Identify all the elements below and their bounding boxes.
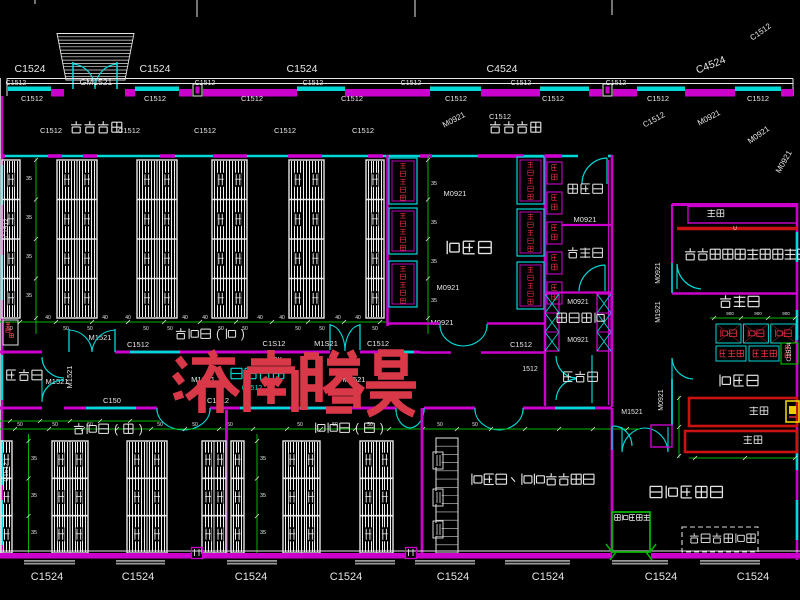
svg-text:50: 50 — [17, 422, 23, 428]
svg-text:C1524: C1524 — [532, 571, 564, 583]
svg-text:C1512: C1512 — [445, 94, 467, 103]
svg-text:50: 50 — [472, 422, 478, 428]
svg-text:C1512: C1512 — [3, 218, 10, 238]
svg-text:50: 50 — [87, 326, 93, 332]
svg-text:C1524: C1524 — [737, 571, 769, 583]
svg-text:35: 35 — [31, 456, 37, 462]
svg-text:35: 35 — [260, 456, 266, 462]
svg-text:M0921: M0921 — [437, 283, 460, 292]
svg-text:35: 35 — [26, 254, 32, 260]
svg-text:50: 50 — [157, 422, 163, 428]
svg-text:C1512: C1512 — [195, 80, 216, 87]
svg-text:C1512: C1512 — [511, 80, 532, 87]
svg-text:C1524: C1524 — [437, 571, 469, 583]
svg-text:50: 50 — [319, 326, 325, 332]
svg-text:900: 900 — [726, 311, 734, 316]
svg-text:35: 35 — [26, 293, 32, 299]
svg-text:C1524: C1524 — [786, 342, 793, 362]
svg-text:1512: 1512 — [522, 366, 538, 373]
svg-text:C1524: C1524 — [287, 63, 318, 75]
svg-text:C1524: C1524 — [140, 63, 171, 75]
svg-text:40: 40 — [125, 315, 131, 321]
svg-text:C1512: C1512 — [542, 94, 564, 103]
svg-text:35: 35 — [26, 176, 32, 182]
svg-text:C1512: C1512 — [352, 126, 374, 135]
svg-text:C1512: C1512 — [40, 126, 62, 135]
svg-text:C1512: C1512 — [3, 462, 10, 482]
svg-text:35: 35 — [31, 530, 37, 536]
svg-text:M1521: M1521 — [89, 333, 112, 342]
svg-text:50: 50 — [295, 326, 301, 332]
svg-text:(: ( — [355, 423, 359, 435]
svg-text:M0921: M0921 — [655, 262, 662, 284]
svg-text:M1521: M1521 — [621, 409, 643, 416]
svg-text:40: 40 — [279, 315, 285, 321]
svg-text:C1512: C1512 — [606, 80, 627, 87]
svg-text:): ) — [241, 329, 245, 341]
svg-text:900: 900 — [754, 311, 762, 316]
svg-text:C1512: C1512 — [341, 94, 363, 103]
svg-text:50: 50 — [63, 326, 69, 332]
svg-text:C1512: C1512 — [647, 94, 669, 103]
svg-text:50: 50 — [52, 422, 58, 428]
svg-text:C1524: C1524 — [330, 571, 362, 583]
svg-text:40: 40 — [45, 315, 51, 321]
svg-text:40: 40 — [102, 315, 108, 321]
svg-text:C1512: C1512 — [21, 94, 43, 103]
svg-text:35: 35 — [260, 493, 266, 499]
svg-text:C1512: C1512 — [127, 340, 149, 349]
svg-text:M0921: M0921 — [574, 215, 597, 224]
svg-text:50: 50 — [143, 326, 149, 332]
svg-text:M1921: M1921 — [655, 301, 662, 323]
svg-text:C1512: C1512 — [194, 126, 216, 135]
svg-text:C1524: C1524 — [15, 63, 46, 75]
svg-text:C1524: C1524 — [31, 571, 63, 583]
svg-text:C1512: C1512 — [274, 126, 296, 135]
svg-text:C1S12: C1S12 — [263, 339, 286, 348]
svg-text:50: 50 — [372, 326, 378, 332]
svg-text:35: 35 — [431, 259, 437, 265]
svg-text:C1512: C1512 — [510, 340, 532, 349]
svg-text:): ) — [380, 423, 384, 435]
svg-text:M0921: M0921 — [567, 299, 589, 306]
svg-text:C1524: C1524 — [235, 571, 267, 583]
svg-text:C1512: C1512 — [367, 339, 389, 348]
svg-text:C4524: C4524 — [487, 63, 518, 75]
svg-text:35: 35 — [431, 220, 437, 226]
svg-text:C1512: C1512 — [401, 80, 422, 87]
svg-text:40: 40 — [202, 315, 208, 321]
svg-text:C1512: C1512 — [6, 80, 27, 87]
svg-text:(: ( — [216, 329, 220, 341]
svg-text:M0921: M0921 — [567, 337, 589, 344]
svg-text:35: 35 — [431, 181, 437, 187]
svg-text:C1512: C1512 — [144, 94, 166, 103]
svg-text:50: 50 — [297, 422, 303, 428]
svg-text:35: 35 — [260, 530, 266, 536]
svg-text:900: 900 — [782, 311, 790, 316]
svg-text:40: 40 — [257, 315, 263, 321]
svg-text:35: 35 — [26, 215, 32, 221]
svg-text:50: 50 — [192, 422, 198, 428]
svg-text:C1512: C1512 — [489, 112, 511, 121]
svg-text:C1512: C1512 — [303, 80, 324, 87]
svg-text:40: 40 — [182, 315, 188, 321]
svg-text:M0921: M0921 — [444, 189, 467, 198]
svg-text:35: 35 — [31, 493, 37, 499]
svg-text:40: 40 — [355, 315, 361, 321]
svg-text:50: 50 — [227, 422, 233, 428]
svg-text:50: 50 — [167, 326, 173, 332]
svg-text:C1512: C1512 — [241, 94, 263, 103]
svg-text:M1521: M1521 — [65, 366, 74, 389]
svg-text:50: 50 — [437, 422, 443, 428]
svg-text:): ) — [139, 424, 143, 436]
svg-text:C1512: C1512 — [747, 94, 769, 103]
svg-text:(: ( — [114, 424, 118, 436]
svg-text:M1S21: M1S21 — [314, 339, 338, 348]
svg-text:U: U — [733, 226, 737, 232]
svg-text:40: 40 — [335, 315, 341, 321]
svg-text:C1524: C1524 — [645, 571, 677, 583]
svg-text:C1524: C1524 — [122, 571, 154, 583]
svg-text:M0921: M0921 — [658, 389, 665, 411]
svg-text:35: 35 — [431, 298, 437, 304]
svg-text:C150: C150 — [103, 396, 121, 405]
